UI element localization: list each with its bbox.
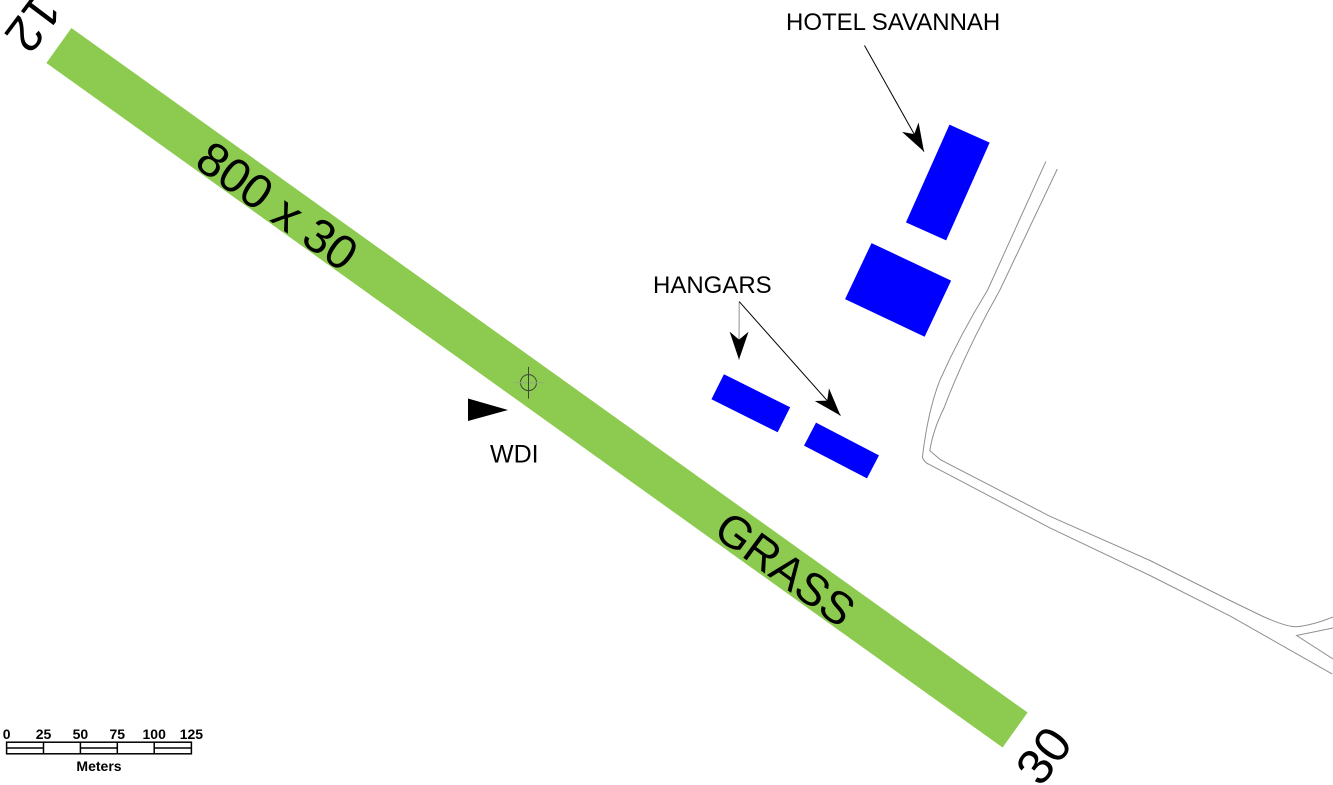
svg-text:Meters: Meters [76, 758, 121, 774]
svg-text:75: 75 [110, 726, 126, 742]
svg-text:125: 125 [180, 726, 204, 742]
svg-text:50: 50 [73, 726, 89, 742]
svg-text:HANGARS: HANGARS [653, 272, 772, 299]
svg-text:HOTEL SAVANNAH: HOTEL SAVANNAH [786, 9, 1000, 36]
svg-text:0: 0 [3, 726, 11, 742]
svg-text:100: 100 [143, 726, 167, 742]
svg-text:WDI: WDI [490, 441, 539, 469]
svg-text:25: 25 [36, 726, 52, 742]
